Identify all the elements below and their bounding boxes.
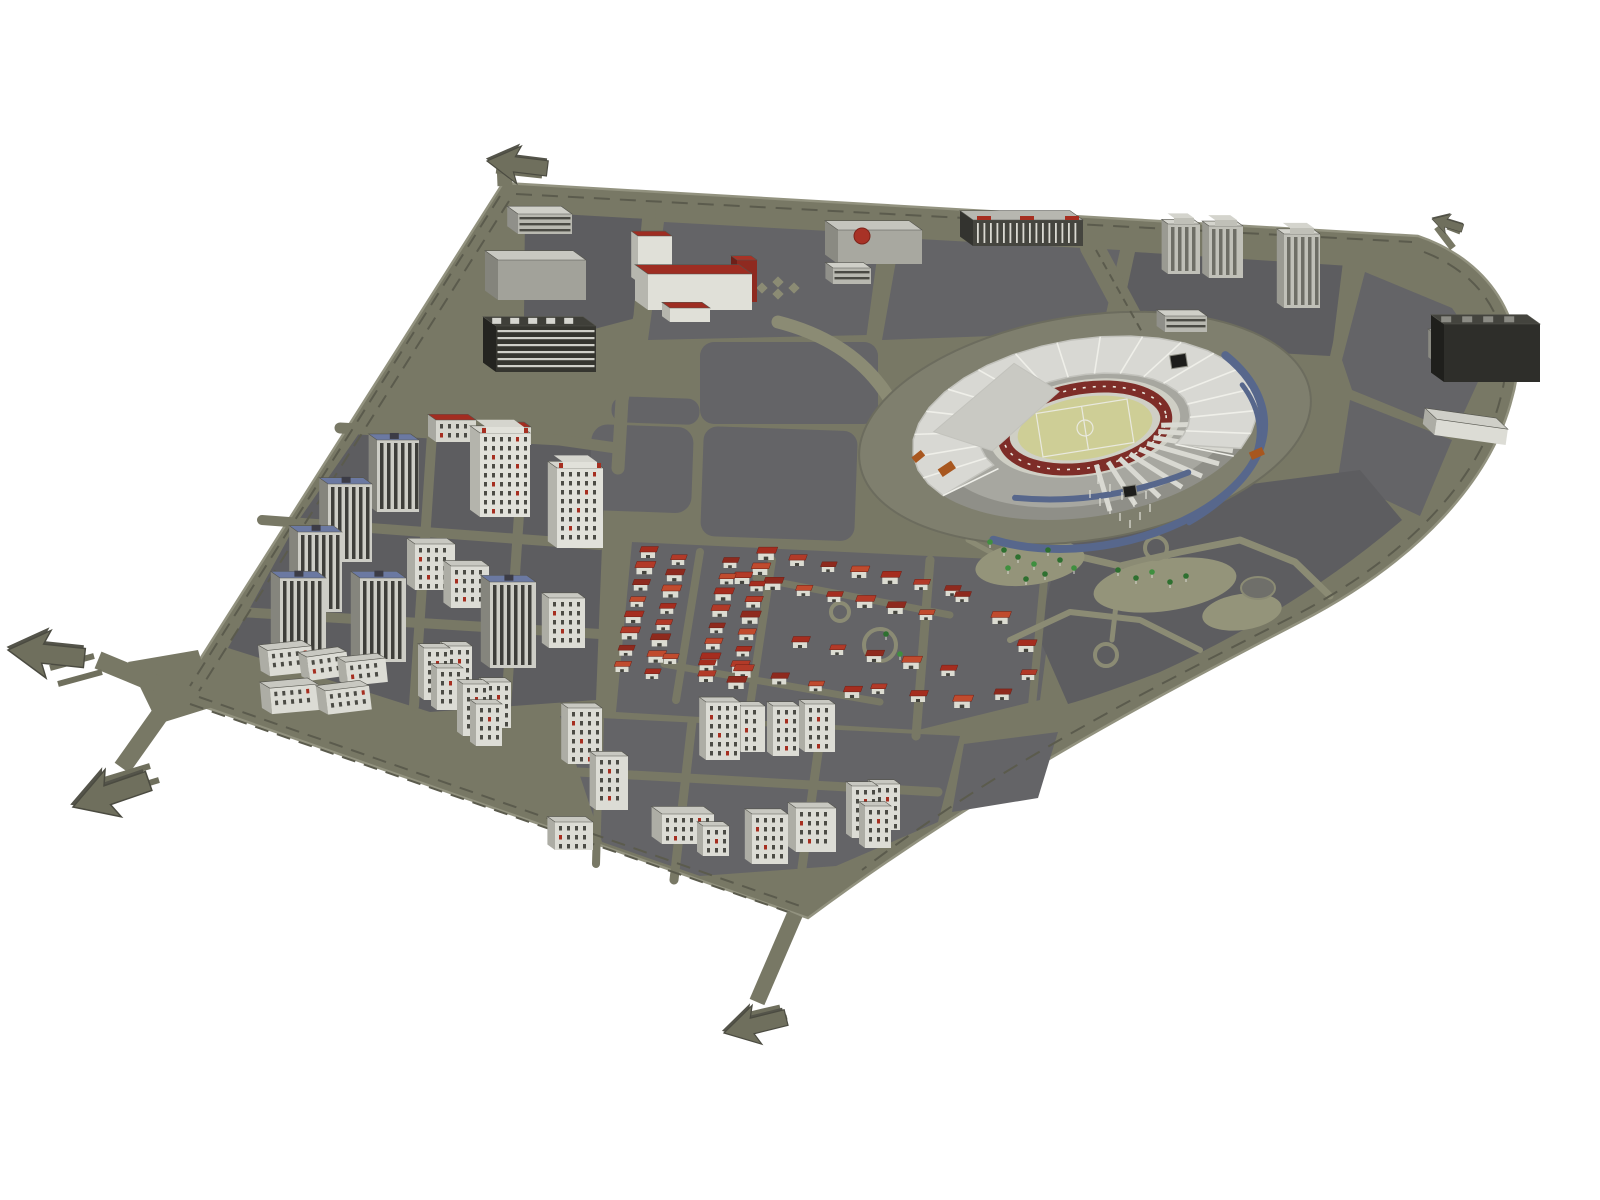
graytower-building (1202, 215, 1243, 278)
exit-arrow (1428, 208, 1466, 238)
tree (1115, 567, 1121, 573)
whitered-building (470, 420, 530, 517)
hstripe-building (825, 263, 871, 284)
exit-arrow (483, 140, 550, 188)
colonnade-building (960, 211, 1083, 246)
graytower-building (1162, 213, 1200, 274)
3d-city-district-model (0, 0, 1600, 1200)
mid-building (697, 822, 729, 856)
tree (1031, 561, 1037, 567)
red-dome (854, 228, 870, 244)
mid-building (590, 751, 628, 810)
tree (987, 539, 993, 545)
tree (1071, 565, 1077, 571)
pond (1241, 577, 1275, 599)
mid-building (767, 702, 799, 756)
checker-building (483, 317, 596, 372)
mid-building (542, 593, 585, 648)
kiosk (1123, 485, 1138, 498)
parcel (700, 426, 858, 541)
tree (897, 651, 903, 657)
tree (1133, 575, 1139, 581)
tree (1057, 557, 1063, 563)
city-master-plan-render (0, 0, 1600, 1200)
gray-building (825, 221, 922, 264)
mid-building (470, 700, 502, 746)
tree (1023, 576, 1029, 582)
tree (1167, 579, 1173, 585)
kiosk (1170, 353, 1188, 368)
tree (1045, 547, 1051, 553)
hall-building (485, 251, 586, 300)
graytower-building (1277, 223, 1320, 308)
tree (1149, 569, 1155, 575)
hstripe-building (1157, 310, 1207, 332)
mid-building (547, 817, 593, 850)
tree (1015, 554, 1021, 560)
blue-building (351, 571, 406, 662)
mid-building (699, 697, 740, 760)
blue-building (369, 433, 419, 512)
tree (1183, 573, 1189, 579)
tree (1042, 571, 1048, 577)
exit-arrow (717, 996, 791, 1053)
mid-building (859, 802, 891, 848)
exit-arrow (4, 623, 88, 682)
mid-building (316, 679, 372, 716)
mid-building (260, 677, 320, 715)
redslab-building (428, 414, 476, 442)
mid-building (799, 700, 835, 752)
blue-building (481, 575, 536, 668)
tree (1001, 547, 1007, 553)
hstripe-building (507, 206, 572, 234)
tree (883, 631, 889, 637)
tree (1005, 565, 1011, 571)
parcel (589, 424, 694, 514)
school-building (662, 302, 710, 322)
mid-building (788, 802, 836, 852)
mid-building (745, 809, 788, 864)
whitered-building (548, 455, 603, 548)
dark-building (1431, 315, 1540, 382)
